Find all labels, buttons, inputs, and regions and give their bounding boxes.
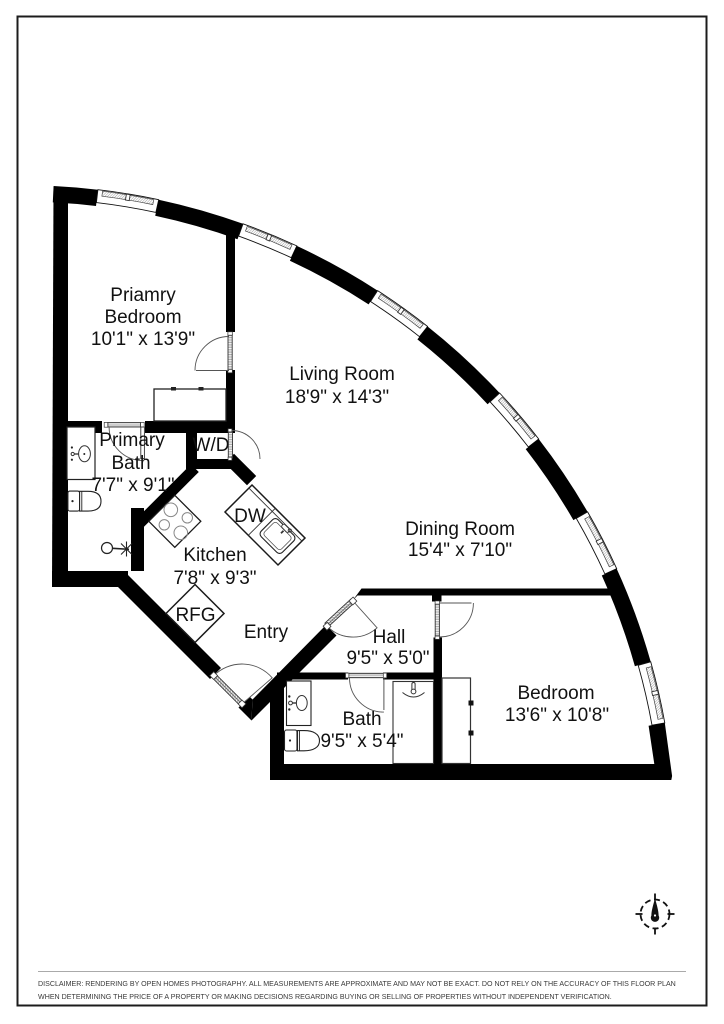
svg-text:Bath: Bath (342, 709, 381, 730)
svg-text:W/D: W/D (193, 435, 230, 456)
svg-text:RFG: RFG (175, 605, 215, 626)
svg-text:Kitchen: Kitchen (183, 545, 246, 566)
svg-text:13'6" x 10'8": 13'6" x 10'8" (505, 705, 609, 726)
svg-text:18'9" x 14'3": 18'9" x 14'3" (285, 387, 389, 408)
svg-text:Priamry: Priamry (110, 285, 176, 306)
svg-text:Bedroom: Bedroom (104, 307, 181, 328)
svg-text:7'8" x 9'3": 7'8" x 9'3" (173, 568, 256, 589)
svg-text:Living Room: Living Room (289, 364, 395, 385)
svg-text:Bedroom: Bedroom (517, 683, 594, 704)
svg-text:DISCLAIMER: RENDERING BY OPEN: DISCLAIMER: RENDERING BY OPEN HOMES PHOT… (38, 980, 676, 988)
svg-text:Bath: Bath (111, 453, 150, 474)
svg-text:WHEN DETERMINING THE PRICE OF: WHEN DETERMINING THE PRICE OF A PROPERTY… (38, 993, 612, 1001)
svg-text:DW: DW (234, 506, 266, 527)
svg-text:Primary: Primary (99, 430, 165, 451)
svg-text:Dining Room: Dining Room (405, 519, 515, 540)
svg-text:7'7" x 9'1": 7'7" x 9'1" (91, 475, 174, 496)
svg-text:9'5" x 5'4": 9'5" x 5'4" (320, 731, 403, 752)
svg-text:10'1" x 13'9": 10'1" x 13'9" (91, 329, 195, 350)
svg-text:Hall: Hall (373, 627, 406, 648)
svg-text:15'4" x 7'10": 15'4" x 7'10" (408, 540, 512, 561)
svg-text:Entry: Entry (244, 622, 289, 643)
svg-text:9'5" x 5'0": 9'5" x 5'0" (346, 648, 429, 669)
